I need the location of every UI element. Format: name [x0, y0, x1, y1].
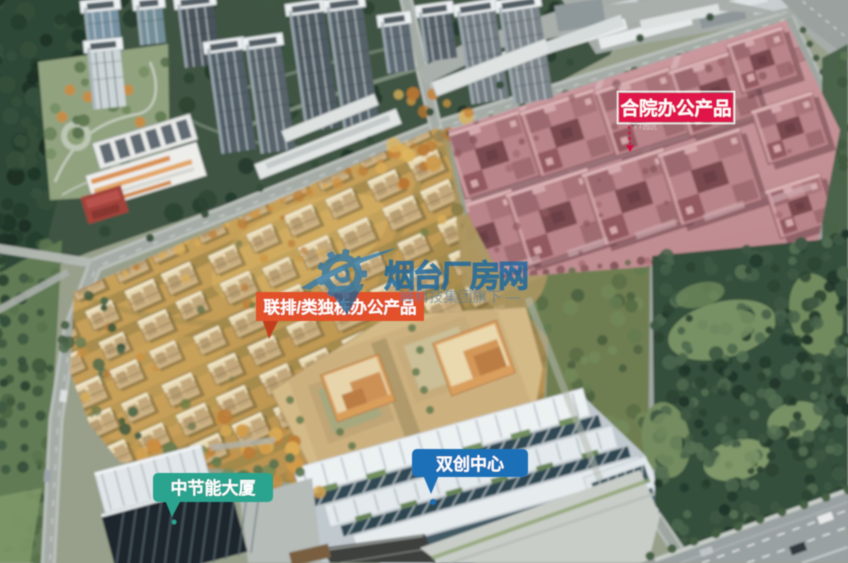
svg-text:中节能大厦: 中节能大厦: [171, 478, 257, 498]
svg-text:烟台厂房网: 烟台厂房网: [384, 259, 527, 294]
svg-text:合院办公产品: 合院办公产品: [620, 98, 731, 119]
svg-text:双创中心: 双创中心: [436, 454, 504, 474]
svg-text:YT园区: YT园区: [633, 122, 658, 131]
svg-text:峰科技集团旗下 —: 峰科技集团旗下 —: [400, 289, 521, 306]
